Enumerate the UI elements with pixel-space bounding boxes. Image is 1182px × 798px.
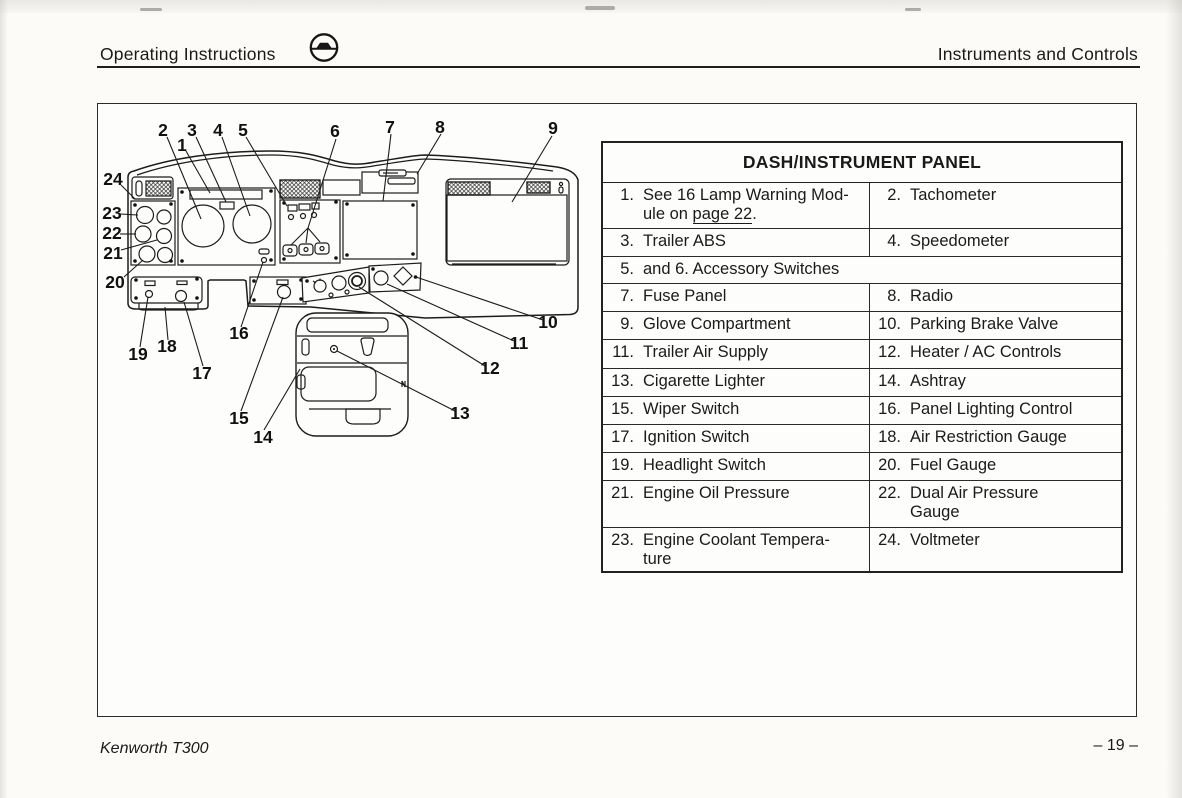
page-reference: page 22 [693, 205, 753, 224]
callout-15: 15 [229, 408, 249, 428]
callout-20: 20 [105, 272, 125, 292]
scan-artifact-right [1166, 0, 1182, 798]
driver-vent-panel [132, 177, 173, 199]
footer-page-number: – 19 – [1094, 737, 1138, 755]
callout-3: 3 [187, 120, 197, 140]
table-row: 15.Wiper Switch 16.Panel Lighting Contro… [603, 396, 1121, 424]
table-row: 17.Ignition Switch 18.Air Restriction Ga… [603, 424, 1121, 452]
callout-8: 8 [435, 117, 445, 137]
callout-10: 10 [538, 312, 558, 332]
header-chapter-title: Instruments and Controls [938, 44, 1138, 65]
table-row: 13.Cigarette Lighter 14.Ashtray [603, 368, 1121, 396]
table-row: 21.Engine Oil Pressure 22.Dual Air Press… [603, 480, 1121, 528]
storage-pocket [323, 180, 360, 195]
callout-13: 13 [450, 403, 470, 423]
radio-slots [362, 170, 418, 193]
header-rule [97, 66, 1140, 68]
scan-speck [140, 8, 162, 11]
callout-2: 2 [158, 120, 168, 140]
scan-artifact-left [0, 0, 8, 798]
scan-speck [585, 6, 615, 10]
callout-24: 24 [103, 169, 123, 189]
steering-wheel-icon [307, 31, 341, 64]
small-gauge-cluster [131, 201, 175, 265]
table-cell: 1. See 16 Lamp Warning Mod-ule on page 2… [603, 183, 869, 228]
callout-6: 6 [330, 121, 340, 141]
callout-4: 4 [213, 120, 223, 140]
callout-19: 19 [128, 344, 148, 364]
callout-9: 9 [548, 118, 558, 138]
dash-diagram: 1 2 3 4 5 6 7 8 9 10 11 12 13 14 15 16 1… [97, 103, 599, 717]
callout-1: 1 [177, 135, 187, 155]
legend-table: DASH/INSTRUMENT PANEL 1. See 16 Lamp War… [601, 141, 1123, 573]
callout-14: 14 [253, 427, 273, 447]
callout-18: 18 [157, 336, 177, 356]
callout-11: 11 [510, 333, 529, 353]
passenger-vent-grille [448, 182, 490, 195]
passenger-vent-grille [527, 182, 550, 193]
callout-16: 16 [229, 323, 249, 343]
table-row: 1. See 16 Lamp Warning Mod-ule on page 2… [603, 183, 1121, 228]
table-row: 23.Engine Coolant Tempera-ture 24.Voltme… [603, 527, 1121, 571]
callout-23: 23 [102, 203, 122, 223]
accessory-switch-panel [280, 200, 340, 263]
callout-12: 12 [480, 358, 500, 378]
footer-model: Kenworth T300 [100, 740, 209, 758]
scan-speck [905, 8, 921, 11]
fuse-panel [343, 201, 417, 259]
callout-17: 17 [192, 363, 211, 383]
wiper-switch-panel [250, 277, 306, 304]
table-row: 19.Headlight Switch 20.Fuel Gauge [603, 452, 1121, 480]
callout-5: 5 [238, 120, 248, 140]
callout-7: 7 [385, 117, 395, 137]
table-row: 3.Trailer ABS 4.Speedometer [603, 228, 1121, 256]
header-section-title: Operating Instructions [100, 44, 276, 65]
callout-22: 22 [102, 223, 122, 243]
table-row: 7.Fuse Panel 8.Radio [603, 283, 1121, 311]
table-row-span: 5.and 6. Accessory Switches [603, 256, 1121, 284]
table-cell: 2. Tachometer [869, 183, 1121, 228]
center-vent-grille [280, 180, 320, 198]
table-title: DASH/INSTRUMENT PANEL [603, 143, 1121, 183]
table-row: 11.Trailer Air Supply 12.Heater / AC Con… [603, 339, 1121, 368]
steering-column [296, 313, 408, 436]
table-row: 9.Glove Compartment 10.Parking Brake Val… [603, 311, 1121, 339]
manual-page: Operating Instructions Instruments and C… [0, 0, 1182, 798]
glove-compartment [446, 179, 569, 265]
callout-21: 21 [103, 243, 123, 263]
